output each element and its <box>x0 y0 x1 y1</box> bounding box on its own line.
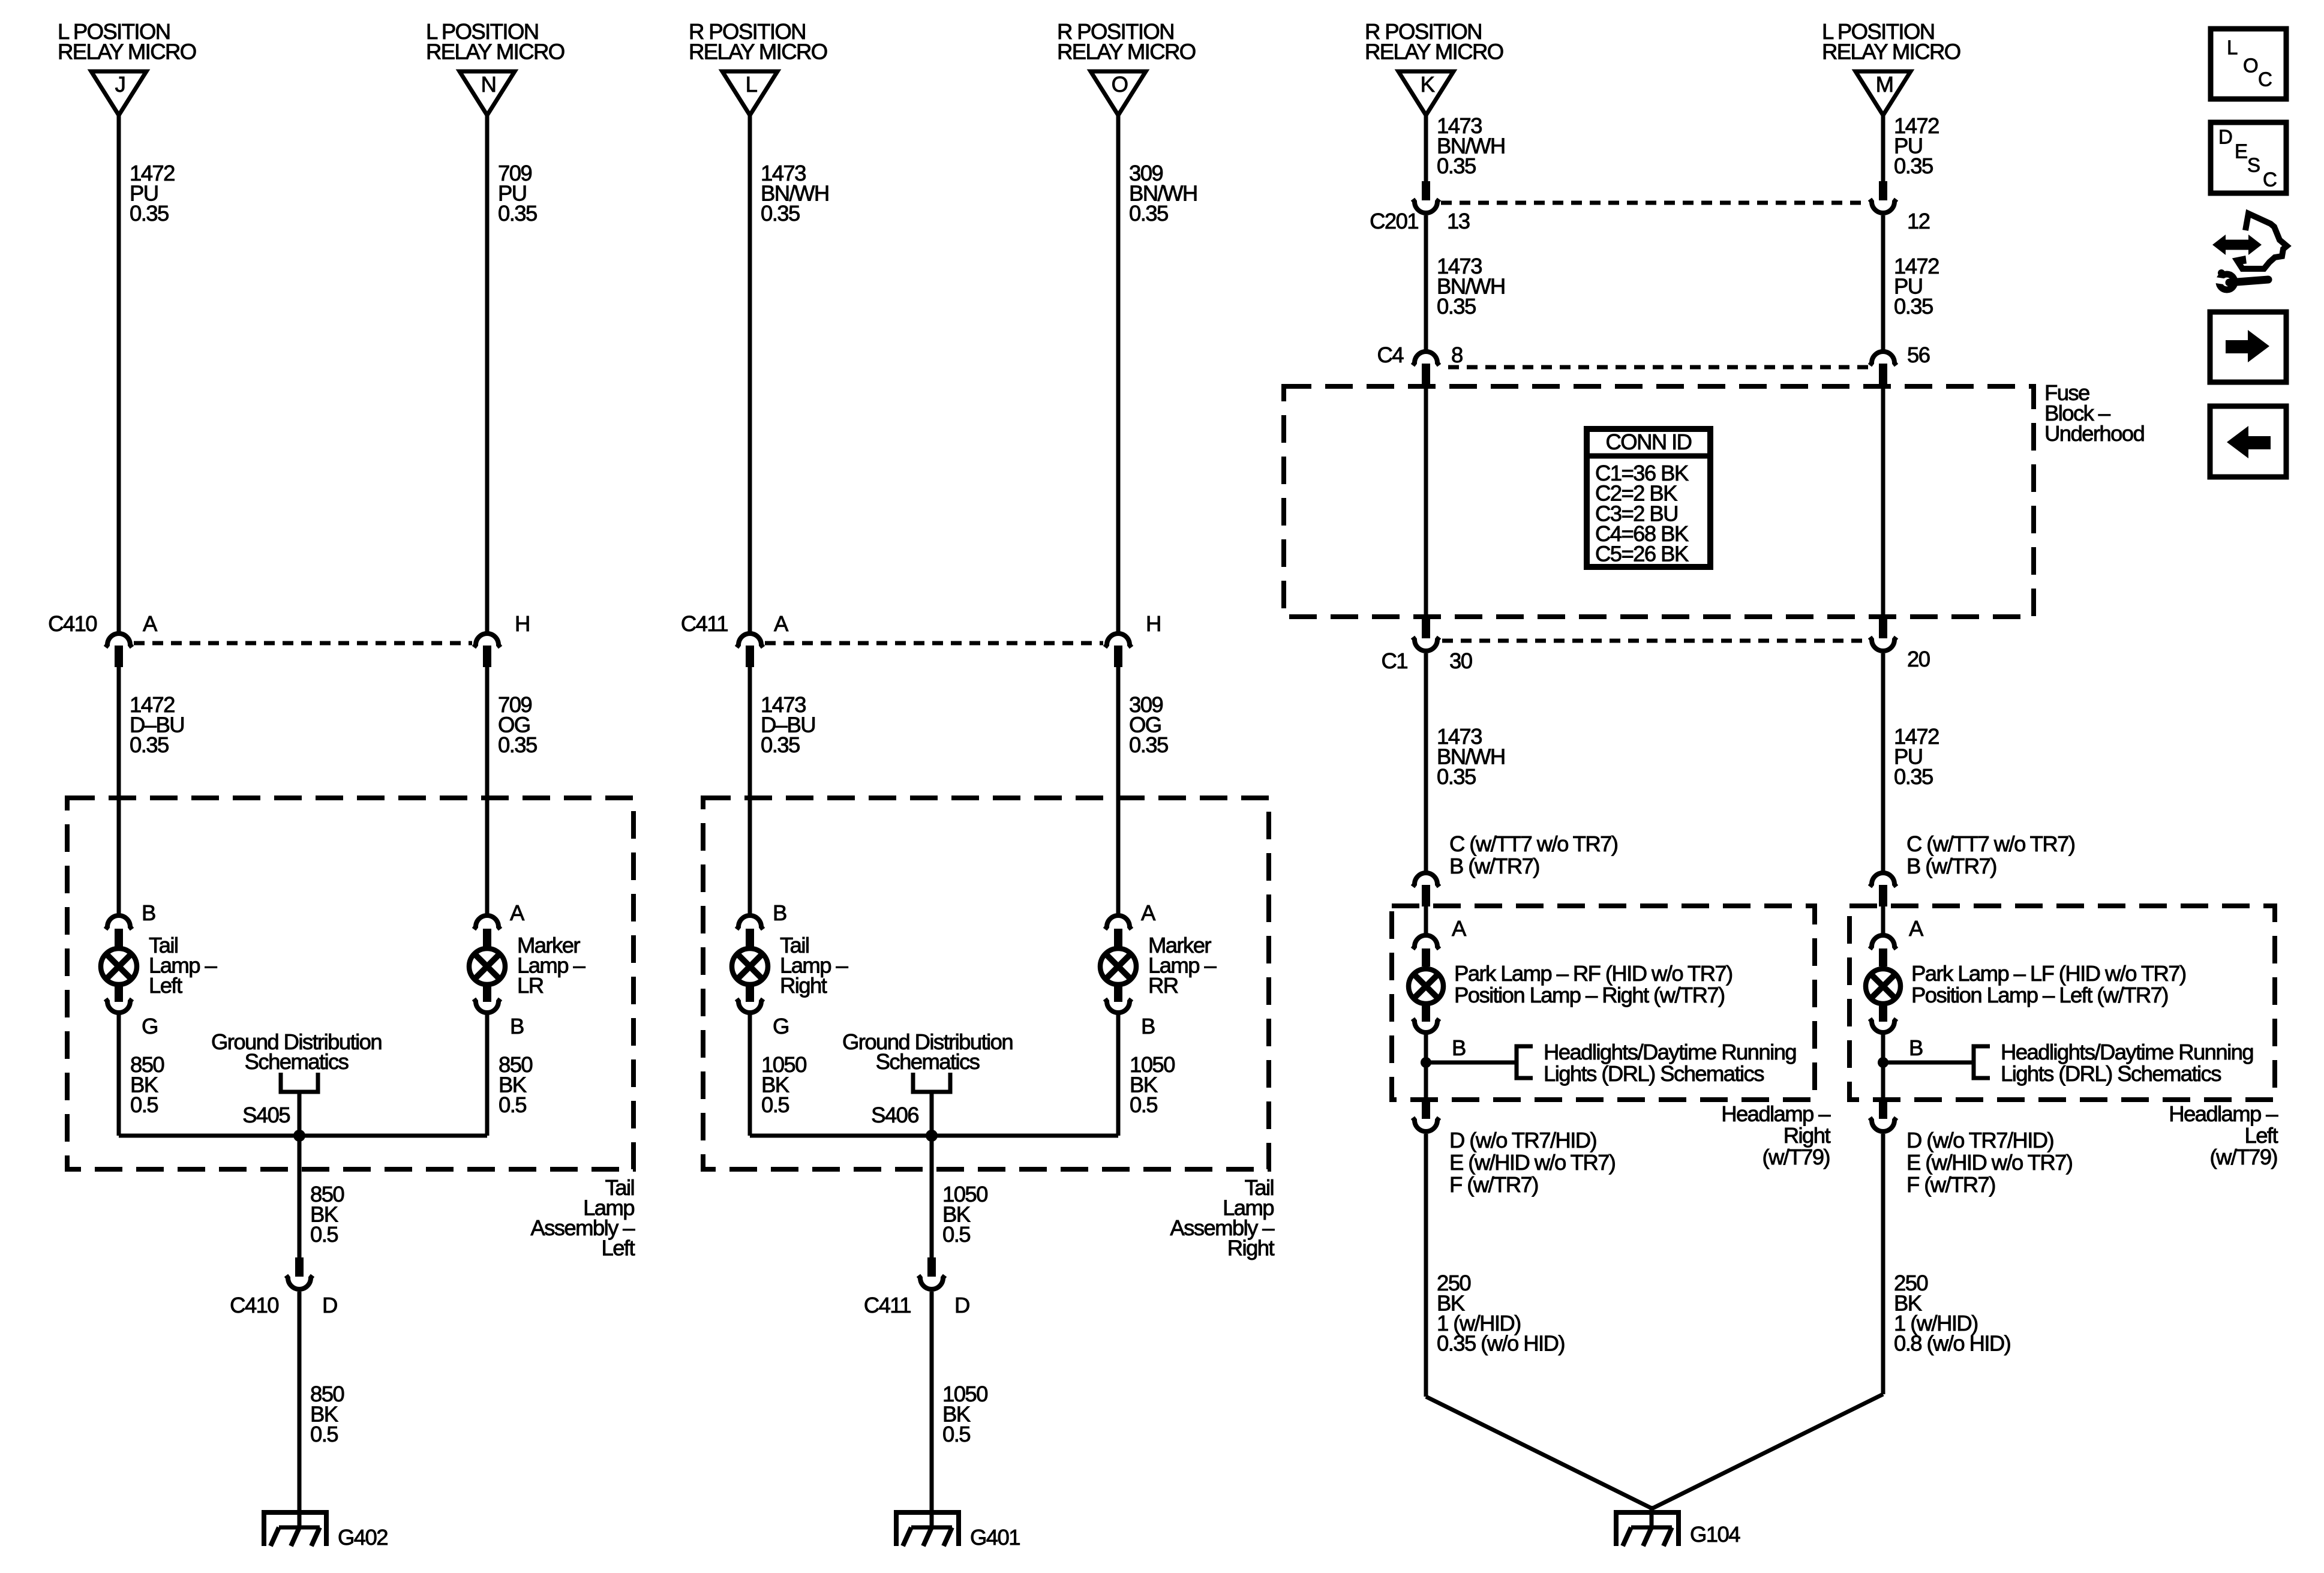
svg-text:B: B <box>1452 1035 1466 1060</box>
svg-text:RELAY MICRO: RELAY MICRO <box>1822 40 1960 64</box>
svg-text:E: E <box>2235 140 2247 163</box>
svg-text:B: B <box>142 900 155 925</box>
svg-text:C410: C410 <box>48 611 97 636</box>
svg-text:M: M <box>1876 72 1893 97</box>
svg-text:(w/T79): (w/T79) <box>1762 1145 1830 1169</box>
svg-text:0.35: 0.35 <box>1894 764 1933 789</box>
svg-text:Headlights/Daytime Running: Headlights/Daytime Running <box>2001 1040 2253 1064</box>
svg-text:Headlights/Daytime Running: Headlights/Daytime Running <box>1544 1040 1796 1064</box>
svg-text:S406: S406 <box>871 1103 918 1127</box>
svg-text:B (w/TR7): B (w/TR7) <box>1906 854 1996 878</box>
svg-text:0.5: 0.5 <box>130 1092 158 1117</box>
svg-text:0.35: 0.35 <box>1437 764 1476 789</box>
svg-text:C (w/TT7 w/o TR7): C (w/TT7 w/o TR7) <box>1906 831 2074 856</box>
svg-text:RELAY MICRO: RELAY MICRO <box>58 40 196 64</box>
svg-text:C: C <box>2258 68 2272 91</box>
svg-text:0.8 (w/o HID): 0.8 (w/o HID) <box>1894 1331 2010 1356</box>
svg-text:0.35: 0.35 <box>1129 201 1168 226</box>
svg-text:C411: C411 <box>681 611 728 636</box>
svg-text:RELAY MICRO: RELAY MICRO <box>1057 40 1196 64</box>
svg-text:Headlamp –: Headlamp – <box>2169 1101 2278 1126</box>
svg-text:K: K <box>1421 72 1435 97</box>
svg-text:0.35: 0.35 <box>1129 733 1168 757</box>
svg-text:0.35: 0.35 <box>498 733 537 757</box>
svg-text:Park Lamp – LF (HID w/o TR7): Park Lamp – LF (HID w/o TR7) <box>1911 961 2186 986</box>
svg-text:G: G <box>142 1014 158 1038</box>
svg-text:0.35: 0.35 <box>1437 154 1476 178</box>
svg-text:0.5: 0.5 <box>1130 1092 1157 1117</box>
svg-text:A: A <box>1141 900 1156 925</box>
svg-text:G402: G402 <box>338 1525 388 1550</box>
svg-text:N: N <box>481 72 496 97</box>
svg-text:A: A <box>143 611 158 636</box>
svg-text:RELAY MICRO: RELAY MICRO <box>426 40 565 64</box>
svg-text:13: 13 <box>1447 209 1470 233</box>
svg-text:RR: RR <box>1148 973 1178 998</box>
svg-text:S405: S405 <box>242 1103 290 1127</box>
svg-text:CONN ID: CONN ID <box>1606 430 1692 454</box>
svg-text:L: L <box>2227 37 2238 59</box>
svg-text:F (w/TR7): F (w/TR7) <box>1906 1172 1995 1197</box>
svg-text:Right: Right <box>1783 1123 1831 1148</box>
svg-text:A: A <box>510 900 525 925</box>
svg-text:A: A <box>1909 916 1924 941</box>
svg-text:C201: C201 <box>1370 209 1418 233</box>
svg-text:Left: Left <box>149 973 182 998</box>
svg-text:C1: C1 <box>1382 649 1408 673</box>
svg-text:C4: C4 <box>1377 343 1404 367</box>
svg-text:0.35: 0.35 <box>761 201 800 226</box>
svg-text:0.35 (w/o HID): 0.35 (w/o HID) <box>1437 1331 1565 1356</box>
svg-text:A: A <box>1452 916 1467 941</box>
svg-text:A: A <box>774 611 789 636</box>
svg-text:Lights (DRL) Schematics: Lights (DRL) Schematics <box>2001 1061 2221 1086</box>
svg-text:O: O <box>2243 55 2258 77</box>
svg-text:D: D <box>954 1293 969 1317</box>
svg-text:RELAY MICRO: RELAY MICRO <box>1365 40 1503 64</box>
svg-text:Position Lamp – Left (w/TR7): Position Lamp – Left (w/TR7) <box>1911 983 2168 1007</box>
svg-text:LR: LR <box>517 973 544 998</box>
svg-text:0.35: 0.35 <box>130 733 169 757</box>
svg-text:D: D <box>2218 126 2232 148</box>
svg-text:G: G <box>773 1014 789 1038</box>
svg-text:8: 8 <box>1451 343 1463 367</box>
svg-text:J: J <box>115 72 125 97</box>
svg-text:0.5: 0.5 <box>761 1092 789 1117</box>
svg-text:E (w/HID w/o TR7): E (w/HID w/o TR7) <box>1906 1150 2072 1175</box>
svg-text:D (w/o TR7/HID): D (w/o TR7/HID) <box>1906 1128 2053 1152</box>
svg-text:Park Lamp – RF (HID w/o TR7): Park Lamp – RF (HID w/o TR7) <box>1454 961 1733 986</box>
svg-text:0.35: 0.35 <box>1894 154 1933 178</box>
svg-text:O: O <box>1112 72 1128 97</box>
svg-text:L: L <box>746 72 758 97</box>
svg-text:B: B <box>1141 1014 1155 1038</box>
svg-text:C5=26 BK: C5=26 BK <box>1595 542 1689 566</box>
svg-text:B: B <box>773 900 786 925</box>
svg-text:S: S <box>2247 154 2260 176</box>
svg-text:H: H <box>515 611 530 636</box>
svg-text:E (w/HID w/o TR7): E (w/HID w/o TR7) <box>1449 1150 1615 1175</box>
svg-text:0.35: 0.35 <box>1437 294 1476 319</box>
svg-text:G104: G104 <box>1690 1522 1740 1547</box>
svg-text:0.35: 0.35 <box>761 733 800 757</box>
svg-text:Position Lamp – Right (w/TR7): Position Lamp – Right (w/TR7) <box>1454 983 1725 1007</box>
svg-text:30: 30 <box>1449 649 1472 673</box>
svg-text:D (w/o TR7/HID): D (w/o TR7/HID) <box>1449 1128 1596 1152</box>
svg-text:B: B <box>510 1014 524 1038</box>
svg-text:0.5: 0.5 <box>942 1222 970 1247</box>
svg-text:Right: Right <box>780 973 827 998</box>
svg-text:Right: Right <box>1227 1236 1275 1260</box>
svg-text:C410: C410 <box>230 1293 278 1317</box>
svg-text:C: C <box>2263 169 2277 191</box>
svg-text:0.5: 0.5 <box>310 1222 338 1247</box>
svg-text:RELAY MICRO: RELAY MICRO <box>689 40 827 64</box>
svg-text:20: 20 <box>1907 647 1930 671</box>
svg-text:0.35: 0.35 <box>130 201 169 226</box>
svg-text:Left: Left <box>602 1236 635 1260</box>
svg-text:Schematics: Schematics <box>245 1049 349 1074</box>
svg-text:Lights (DRL) Schematics: Lights (DRL) Schematics <box>1544 1061 1764 1086</box>
svg-text:Schematics: Schematics <box>876 1049 980 1074</box>
svg-text:0.5: 0.5 <box>499 1092 526 1117</box>
svg-text:H: H <box>1146 611 1161 636</box>
svg-text:12: 12 <box>1907 209 1930 233</box>
svg-text:0.5: 0.5 <box>310 1422 338 1446</box>
svg-text:0.35: 0.35 <box>1894 294 1933 319</box>
svg-text:56: 56 <box>1907 343 1930 367</box>
svg-text:G401: G401 <box>970 1525 1020 1550</box>
svg-text:B (w/TR7): B (w/TR7) <box>1449 854 1539 878</box>
svg-text:B: B <box>1909 1035 1923 1060</box>
svg-text:0.35: 0.35 <box>498 201 537 226</box>
svg-text:Headlamp –: Headlamp – <box>1721 1101 1831 1126</box>
svg-text:0.5: 0.5 <box>942 1422 970 1446</box>
svg-text:Underhood: Underhood <box>2044 421 2144 446</box>
svg-text:Left: Left <box>2245 1123 2278 1148</box>
svg-text:C411: C411 <box>864 1293 911 1317</box>
svg-text:(w/T79): (w/T79) <box>2209 1145 2277 1169</box>
svg-text:F (w/TR7): F (w/TR7) <box>1449 1172 1538 1197</box>
svg-text:D: D <box>322 1293 337 1317</box>
svg-text:C (w/TT7 w/o TR7): C (w/TT7 w/o TR7) <box>1449 831 1617 856</box>
